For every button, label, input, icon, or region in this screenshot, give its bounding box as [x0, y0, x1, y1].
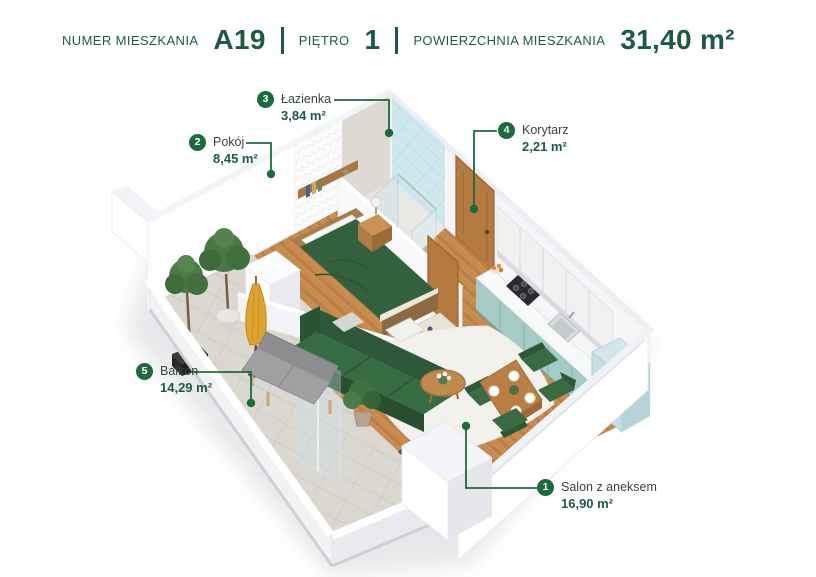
room-number-badge: 4: [498, 122, 515, 139]
room-name: Balkon: [160, 363, 212, 379]
connector-dot: [470, 205, 478, 213]
plate: [489, 386, 499, 396]
connector-dot: [385, 129, 393, 137]
room-number-badge: 5: [136, 363, 153, 380]
connector-dot: [267, 170, 275, 178]
room-area: 16,90 m²: [561, 496, 657, 511]
room-number-badge: 1: [537, 479, 554, 496]
room-area: 8,45 m²: [213, 151, 258, 166]
room-area: 14,29 m²: [160, 380, 212, 395]
table-plant: [509, 385, 519, 395]
room-label-pokoj: 2 Pokój 8,45 m²: [189, 134, 258, 166]
room-number-badge: 2: [189, 134, 206, 151]
floorplan-3d-render: [0, 0, 816, 577]
connector-dot: [247, 399, 255, 407]
lamp-shade: [371, 197, 381, 207]
room-name: Łazienka: [281, 91, 331, 107]
room-label-lazienka: 3 Łazienka 3,84 m²: [257, 91, 331, 123]
room-name: Korytarz: [522, 122, 569, 138]
room-area: 3,84 m²: [281, 108, 331, 123]
room-name: Salon z aneksem: [561, 479, 657, 495]
book: [318, 178, 322, 192]
room-name: Pokój: [213, 134, 258, 150]
room-area: 2,21 m²: [522, 139, 569, 154]
shelf-decor: [343, 169, 349, 175]
page: NUMER MIESZKANIA A19 PIĘTRO 1 POWIERZCHN…: [0, 0, 816, 577]
room-label-korytarz: 4 Korytarz 2,21 m²: [498, 122, 569, 154]
book: [306, 184, 310, 198]
room-number-badge: 3: [257, 91, 274, 108]
room-label-salon: 1 Salon z aneksem 16,90 m²: [537, 479, 657, 511]
connector-dot: [462, 422, 470, 430]
plate: [509, 371, 519, 381]
plate: [525, 393, 535, 403]
room-label-balkon: 5 Balkon 14,29 m²: [136, 363, 212, 395]
book: [312, 181, 316, 195]
